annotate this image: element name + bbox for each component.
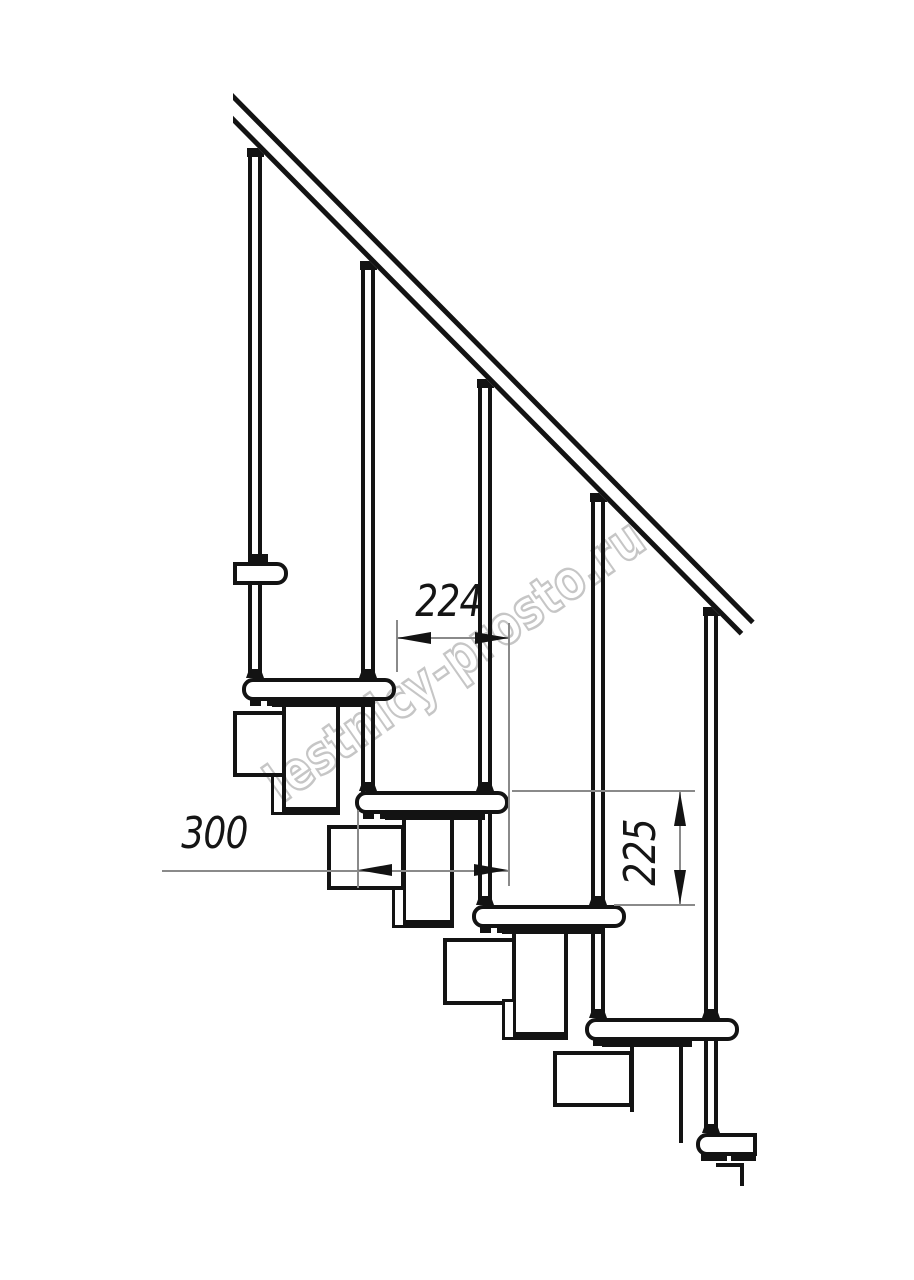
baluster-1 bbox=[248, 156, 262, 678]
dim-300-arrow-left bbox=[358, 864, 392, 876]
tread-3 bbox=[472, 905, 626, 928]
tread-3-clamp-b bbox=[497, 926, 506, 933]
tread-3-mount-bar bbox=[502, 926, 602, 934]
tread-4-mount-bar bbox=[602, 1039, 692, 1047]
dim-225-ext-top bbox=[512, 790, 695, 792]
baluster-5 bbox=[704, 615, 718, 1133]
tread-2 bbox=[355, 791, 509, 814]
bottom-mount-bar-a bbox=[701, 1152, 727, 1161]
bottom-mount-bar-b bbox=[731, 1152, 756, 1161]
dim-300-line bbox=[162, 870, 508, 872]
clamp-strip-3 bbox=[502, 999, 516, 1040]
dim-225-label: 225 bbox=[615, 819, 666, 885]
handrail-section-bracket bbox=[233, 562, 288, 585]
cut-step-line-v bbox=[740, 1163, 744, 1186]
dim-300-arrow-right bbox=[474, 864, 508, 876]
handrail-cut-mask bbox=[183, 58, 233, 140]
module-box-2 bbox=[327, 825, 405, 890]
tread-2-clamp-a bbox=[363, 812, 374, 819]
tread-3-clamp-a bbox=[480, 926, 491, 933]
tread-4 bbox=[585, 1018, 739, 1041]
support-column-3 bbox=[512, 926, 568, 1040]
module-box-4 bbox=[553, 1051, 633, 1107]
dim-224-ext-right bbox=[508, 623, 510, 886]
clamp-strip-2 bbox=[392, 887, 406, 928]
dim-225-arrow-up bbox=[674, 792, 686, 826]
tread-1-clamp-b bbox=[267, 699, 276, 706]
dim-225-ext-bottom bbox=[614, 904, 695, 906]
tread-2-mount-bar bbox=[385, 812, 485, 820]
tread-4-clamp-a bbox=[593, 1039, 604, 1046]
support-column-4-right-line bbox=[679, 1041, 683, 1143]
tread-2-clamp-b bbox=[380, 812, 389, 819]
staircase-drawing: 224 300 225 lestnicy-prosto.ru bbox=[0, 0, 914, 1280]
dim-225-arrow-down bbox=[674, 870, 686, 904]
tread-1-clamp-a bbox=[250, 699, 261, 706]
dim-300-ext-left bbox=[357, 810, 359, 888]
dim-300-label: 300 bbox=[181, 808, 247, 859]
module-box-3 bbox=[443, 938, 520, 1005]
